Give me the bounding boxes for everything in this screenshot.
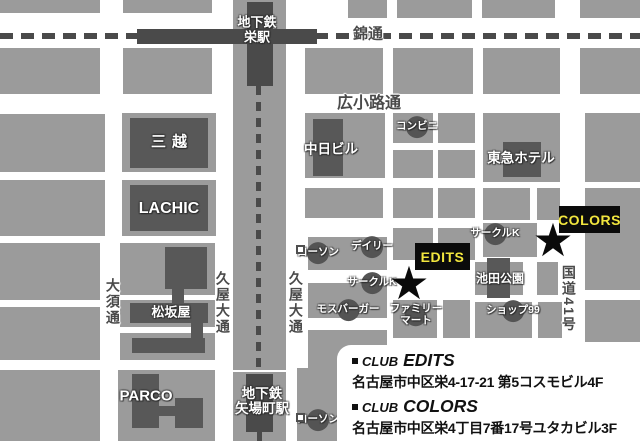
landmark-label-matsuzakaya: 松坂屋 [151,306,190,321]
city-block [0,243,100,300]
access-map: 錦通 広小路通 大須通 久屋大通 久屋大通 国道41号 地下鉄 栄駅 地下鉄 矢… [0,0,640,441]
street-label-hirokoji: 広小路通 [337,95,401,113]
club-name: EDITS [403,350,455,371]
nishiki-subway-line [0,33,640,39]
subway-exit-marker [296,245,305,254]
city-block [123,0,212,13]
street-label-nishiki: 錦通 [353,27,383,44]
landmark-label-chunichi: 中日ビル [304,141,358,156]
city-block [397,0,472,18]
shop-label-daily: デイリー [351,241,393,253]
edits-venue-box: EDITS [415,243,470,270]
subway-station [137,29,317,44]
landmark-label-mitsukoshi: 三越 [145,135,193,152]
city-block [0,307,100,360]
legend-items: CLUBEDITS名古屋市中区栄4-17-21 第5コスモビル4FCLUBCOL… [352,350,640,438]
city-block [443,300,470,338]
building [159,406,175,416]
city-block [0,370,100,441]
city-block [438,113,475,143]
city-block [0,180,105,236]
city-block [0,48,100,94]
legend-item: CLUBCOLORS名古屋市中区栄4丁目7番17号ユタカビル3F [352,396,640,438]
city-block [305,48,383,94]
landmark-label-parco: PARCO [119,389,172,406]
subway-exit-marker [296,413,305,422]
city-block [393,150,433,178]
city-block [0,114,105,172]
club-name-line: CLUBEDITS [352,350,640,371]
square-bullet-icon [352,404,358,410]
city-block [585,188,640,290]
square-bullet-icon [352,358,358,364]
city-block [123,48,212,94]
building [132,338,205,353]
shop-label-circlek-1: サークルK [470,228,519,240]
shop-label-shop99: ショップ99 [486,305,540,317]
building [165,247,207,289]
city-block [580,0,640,18]
street-label-route41: 国道41号 [560,265,576,333]
landmark-label-ikeda-park: 池田公園 [476,272,524,285]
legend-item: CLUBEDITS名古屋市中区栄4-17-21 第5コスモビル4F [352,350,640,392]
club-address: 名古屋市中区栄4丁目7番17号ユタカビル3F [352,418,640,438]
station-label-yabacho: 地下鉄 矢場町駅 [235,386,289,416]
street-label-hisaya-right: 久屋大通 [287,271,303,335]
city-block [0,0,100,13]
city-block [482,0,555,18]
city-block [348,0,387,18]
shop-label-mos-burger: モスバーガー [317,304,380,316]
city-block [538,302,562,338]
club-prefix: CLUB [362,354,398,369]
city-block [305,188,383,218]
venue-address-panel: CLUBEDITS名古屋市中区栄4-17-21 第5コスモビル4FCLUBCOL… [337,345,640,441]
building [175,398,203,428]
hisaya-median-dashed-line [256,86,261,372]
station-label-sakae: 地下鉄 栄駅 [237,15,276,44]
landmark-label-lachic: LACHIC [139,200,199,218]
club-name-line: CLUBCOLORS [352,396,640,417]
city-block [483,48,560,94]
street-label-hisaya-left: 久屋大通 [214,271,230,335]
landmark-label-tokyu-hotel: 東急ホテル [487,150,555,165]
colors-venue-box: COLORS [559,206,620,233]
city-block [483,188,530,220]
club-address: 名古屋市中区栄4-17-21 第5コスモビル4F [352,372,640,392]
city-block [393,188,433,218]
city-block [580,48,640,94]
city-block [585,113,640,182]
city-block [438,150,475,178]
shop-label-conbini: コンビニ [396,121,438,133]
club-prefix: CLUB [362,400,398,415]
street-label-osu: 大須通 [104,278,120,326]
subway-station [257,432,262,441]
city-block [438,188,475,218]
city-block [393,48,473,94]
club-name: COLORS [403,396,478,417]
city-block [585,300,640,342]
